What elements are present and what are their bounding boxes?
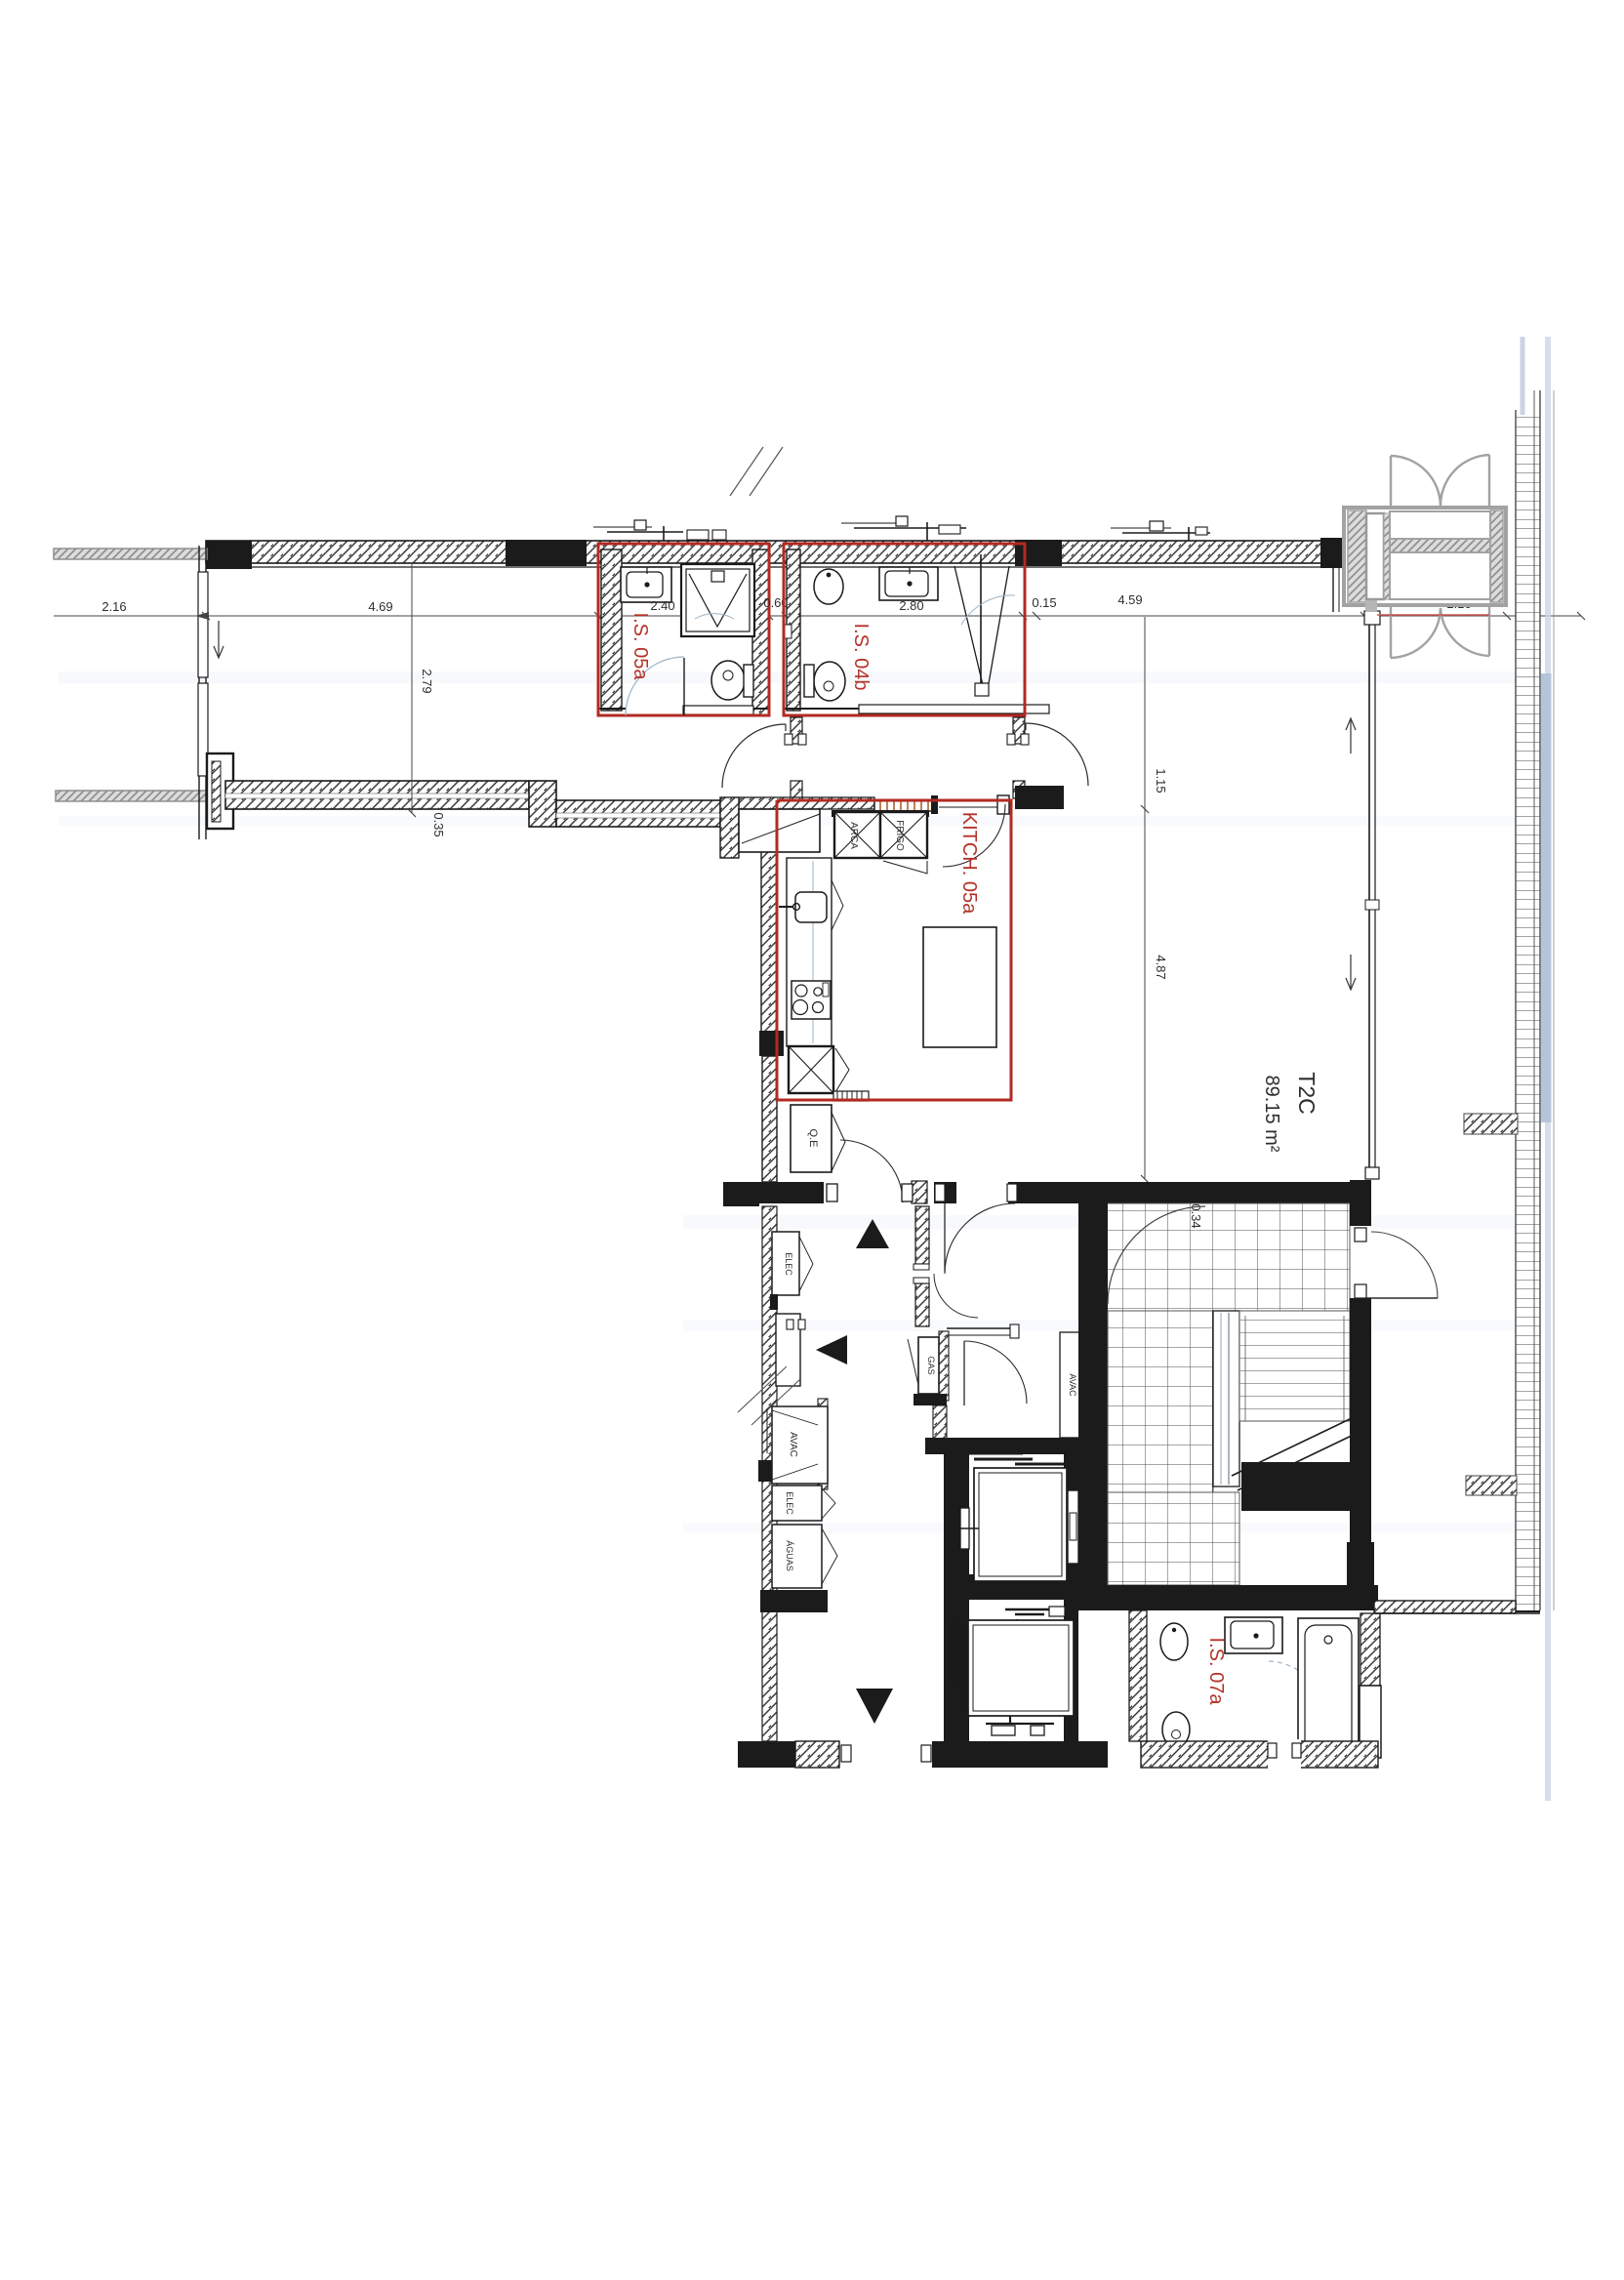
svg-text:2.79: 2.79 [420, 669, 434, 693]
svg-text:T2C: T2C [1294, 1072, 1319, 1114]
svg-text:KITCH. 05a: KITCH. 05a [958, 812, 980, 915]
svg-text:ARCA: ARCA [848, 822, 859, 849]
svg-text:2.40: 2.40 [650, 598, 674, 613]
svg-text:4.87: 4.87 [1154, 955, 1168, 979]
svg-text:GAS: GAS [926, 1356, 936, 1374]
svg-text:I.S. 05a: I.S. 05a [629, 613, 651, 681]
svg-text:2.80: 2.80 [899, 598, 923, 613]
svg-text:4.59: 4.59 [1117, 592, 1142, 607]
svg-text:FRIGO: FRIGO [894, 820, 905, 851]
svg-text:ELEC: ELEC [785, 1491, 794, 1515]
svg-text:1.15: 1.15 [1154, 768, 1168, 793]
svg-text:I.S. 04b: I.S. 04b [850, 624, 872, 691]
svg-text:89.15 m²: 89.15 m² [1261, 1076, 1282, 1153]
svg-text:AVAC: AVAC [788, 1432, 798, 1457]
svg-text:ÁGUAS: ÁGUAS [785, 1540, 794, 1571]
svg-text:4.69: 4.69 [368, 599, 392, 614]
svg-text:Q.E: Q.E [807, 1129, 819, 1148]
svg-text:AVAC: AVAC [1068, 1373, 1077, 1397]
svg-text:0.35: 0.35 [431, 812, 446, 836]
svg-text:0.15: 0.15 [1032, 595, 1056, 610]
svg-text:ELEC: ELEC [784, 1252, 793, 1276]
svg-text:2.16: 2.16 [101, 599, 126, 614]
svg-text:I.S. 07a: I.S. 07a [1205, 1638, 1227, 1706]
